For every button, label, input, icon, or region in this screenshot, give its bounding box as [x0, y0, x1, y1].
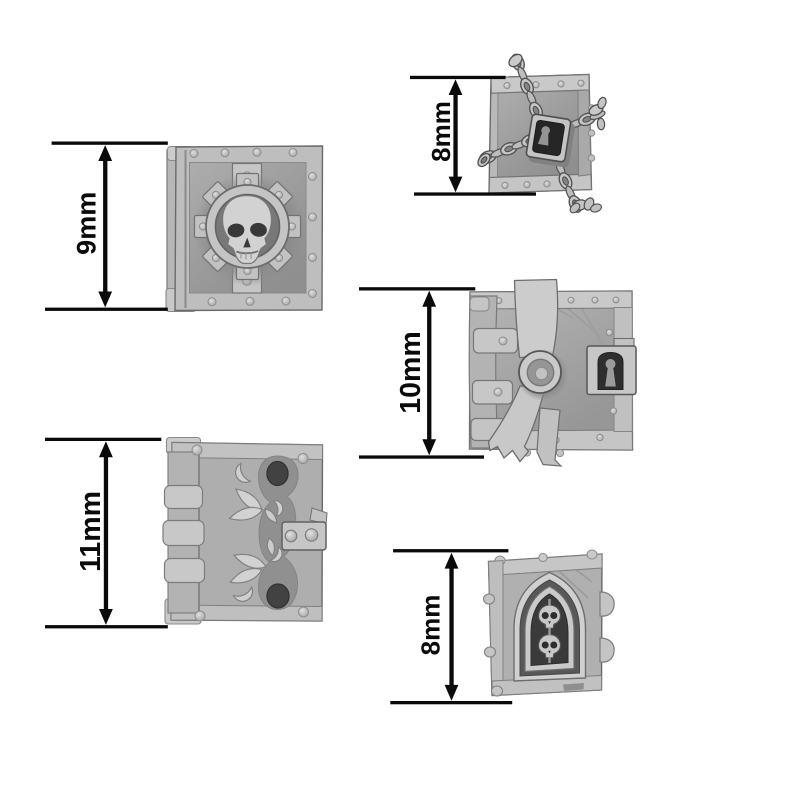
svg-text:9mm: 9mm: [72, 192, 102, 255]
svg-text:11mm: 11mm: [75, 491, 107, 572]
svg-text:8mm: 8mm: [426, 101, 456, 162]
svg-text:10mm: 10mm: [395, 331, 427, 413]
svg-text:8mm: 8mm: [415, 595, 445, 656]
